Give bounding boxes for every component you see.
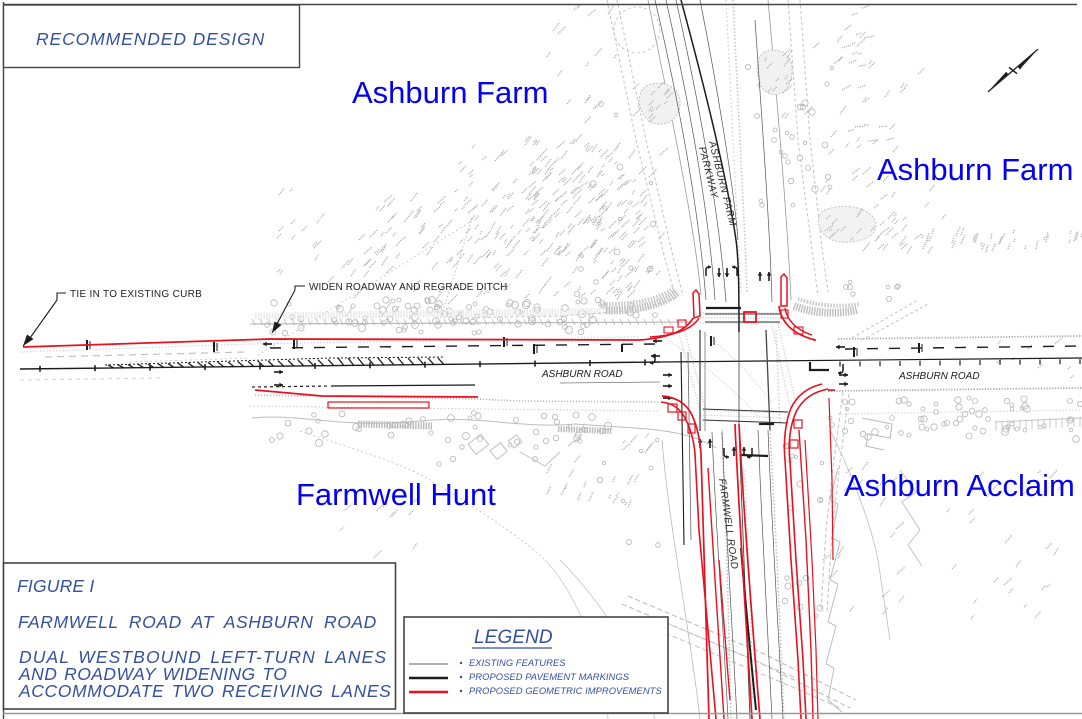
svg-text:FIGURE I: FIGURE I xyxy=(17,576,94,596)
svg-text:RECOMMENDED DESIGN: RECOMMENDED DESIGN xyxy=(36,29,265,49)
svg-text:WIDEN ROADWAY AND REGRADE DITC: WIDEN ROADWAY AND REGRADE DITCH xyxy=(309,282,508,293)
svg-text:PROPOSED GEOMETRIC IMPROVEMENT: PROPOSED GEOMETRIC IMPROVEMENTS xyxy=(469,685,662,696)
svg-text:ACCOMMODATE TWO RECEIVING LANE: ACCOMMODATE TWO RECEIVING LANES xyxy=(18,681,391,701)
svg-text:ASHBURN ROAD: ASHBURN ROAD xyxy=(541,369,623,380)
svg-text:LEGEND: LEGEND xyxy=(474,627,553,648)
svg-text:Ashburn Acclaim: Ashburn Acclaim xyxy=(844,468,1075,503)
svg-text:Farmwell Hunt: Farmwell Hunt xyxy=(296,477,496,512)
svg-text:EXISTING FEATURES: EXISTING FEATURES xyxy=(469,657,566,668)
svg-text:PROPOSED PAVEMENT MARKINGS: PROPOSED PAVEMENT MARKINGS xyxy=(469,671,630,682)
svg-text:Ashburn Farm: Ashburn Farm xyxy=(877,152,1073,187)
svg-text:FARMWELL ROAD AT ASHBURN ROAD: FARMWELL ROAD AT ASHBURN ROAD xyxy=(18,612,377,632)
svg-text:Ashburn Farm: Ashburn Farm xyxy=(352,75,548,110)
svg-text:ASHBURN ROAD: ASHBURN ROAD xyxy=(898,371,980,382)
svg-text:TIE IN TO EXISTING CURB: TIE IN TO EXISTING CURB xyxy=(70,289,202,300)
